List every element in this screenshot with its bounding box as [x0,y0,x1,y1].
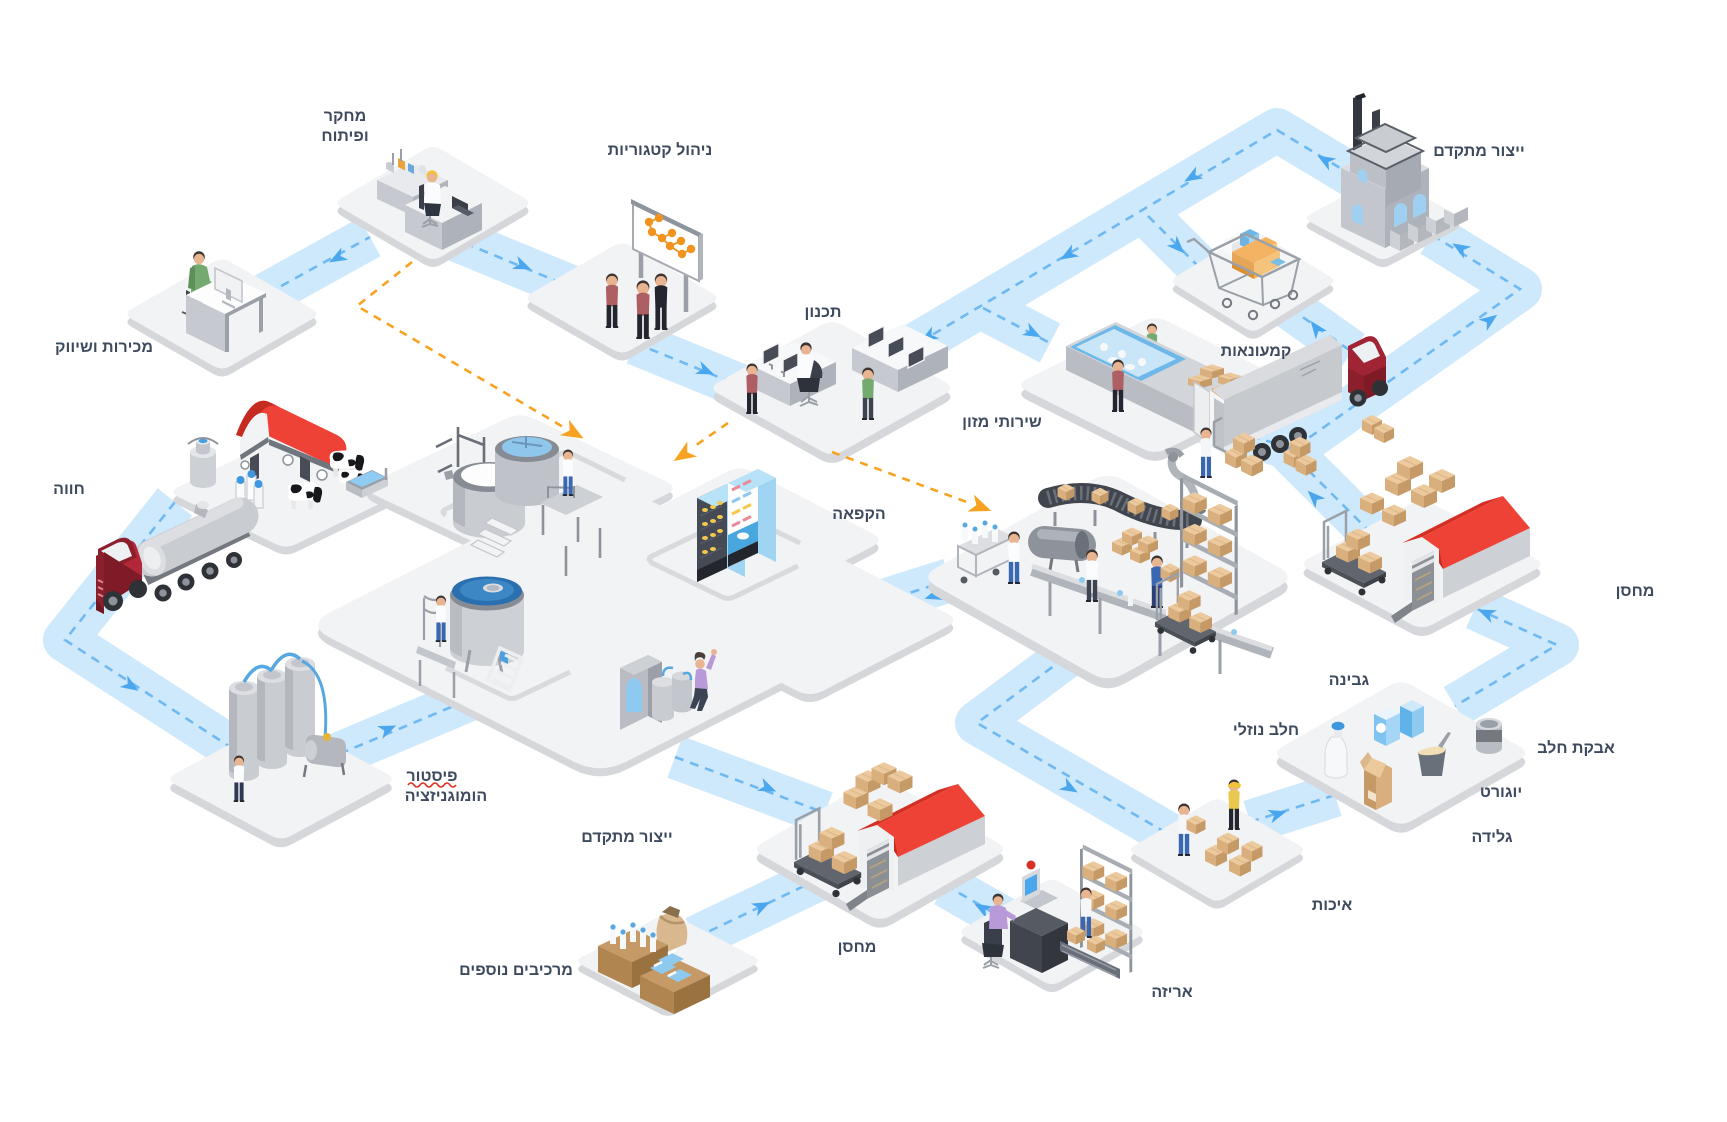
svg-text:יוגורט: יוגורט [1480,784,1522,801]
svg-text:קמעונאות: קמעונאות [1221,343,1292,360]
svg-text:אריזה: אריזה [1151,984,1192,1001]
svg-text:גבינה: גבינה [1329,672,1370,689]
svg-text:מחסן: מחסן [1616,583,1655,600]
svg-text:שירותי מזון: שירותי מזון [962,414,1042,431]
svg-text:חלב נוזלי: חלב נוזלי [1233,721,1299,739]
svg-text:גלידה: גלידה [1472,828,1513,846]
svg-text:אבקת חלב: אבקת חלב [1537,739,1615,757]
svg-text:ניהול קטגוריות: ניהול קטגוריות [608,141,713,159]
svg-text:מחקר: מחקר [324,108,367,125]
svg-text:מכירות ושיווק: מכירות ושיווק [55,339,153,356]
svg-text:הומוגניזציה: הומוגניזציה [405,788,487,805]
svg-text:מחסן: מחסן [838,939,877,956]
svg-text:מרכיבים נוספים: מרכיבים נוספים [459,962,573,979]
svg-text:תכנון: תכנון [805,304,842,321]
svg-text:פיסטור: פיסטור [406,768,457,785]
svg-text:ייצור מתקדם: ייצור מתקדם [581,829,673,846]
svg-text:איכות: איכות [1312,897,1353,914]
svg-text:הקפאה: הקפאה [832,506,885,523]
svg-text:ופיתוח: ופיתוח [321,128,368,145]
svg-text:ייצור מתקדם: ייצור מתקדם [1433,143,1525,160]
svg-text:חווה: חווה [53,481,85,498]
